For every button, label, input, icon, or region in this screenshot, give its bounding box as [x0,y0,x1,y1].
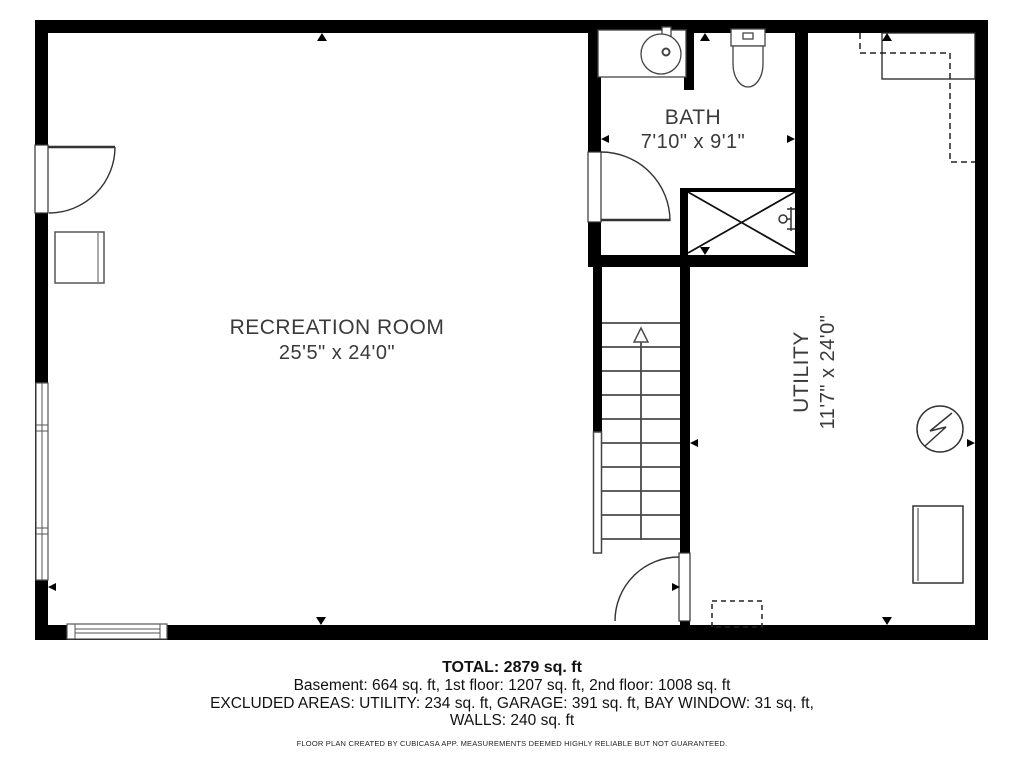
marker-triangle [690,439,698,447]
marker-triangle [700,33,710,41]
marker-triangle [882,617,892,625]
marker-triangle [316,617,326,625]
entry-door [48,147,115,213]
floor-plan-page: RECREATION ROOM 25'5" x 24'0" BATH 7'10"… [0,0,1024,768]
bath-door-opening [588,152,601,222]
recreation-room-dimensions: 25'5" x 24'0" [279,342,395,364]
toilet-icon [731,29,765,87]
sink-vanity-icon [598,27,686,77]
window-left [36,383,48,580]
door-swing-arc [615,557,679,621]
marker-triangle [48,583,56,591]
marker-triangle [317,33,327,41]
marker-triangle [700,247,710,255]
total-area: TOTAL: 2879 sq. ft [0,659,1024,677]
entry-door-opening [35,145,48,213]
marker-triangle [787,135,795,143]
measurement-summary: TOTAL: 2879 sq. ft Basement: 664 sq. ft,… [0,659,1024,748]
excluded-areas-line2: WALLS: 240 sq. ft [0,712,1024,730]
bath-label: BATH [665,106,721,129]
floor-plan-drawing: RECREATION ROOM 25'5" x 24'0" BATH 7'10"… [0,0,1024,660]
appliance-icon [913,506,963,583]
window-bottom [67,624,167,639]
recreation-room-label: RECREATION ROOM [230,316,445,339]
walls [35,20,988,640]
marker-triangle [967,439,975,447]
door-openings [35,145,690,621]
utility-dimensions: 11'7" x 24'0" [817,315,839,430]
shower-valve-icon [779,207,795,231]
stairs-door [615,557,679,621]
door-swing-arc [49,147,115,213]
dashed-fixture-box [712,601,762,627]
bath-dimensions: 7'10" x 9'1" [641,131,746,153]
floor-areas: Basement: 664 sq. ft, 1st floor: 1207 sq… [0,677,1024,695]
cabinet-icon [55,232,104,283]
shower-icon [688,192,795,253]
excluded-areas-line1: EXCLUDED AREAS: UTILITY: 234 sq. ft, GAR… [0,695,1024,713]
water-heater-icon [917,406,963,452]
soffit-box [882,33,975,79]
door-swing-arc [601,152,670,221]
disclaimer-text: FLOOR PLAN CREATED BY CUBICASA APP. MEAS… [0,739,1024,748]
stairs-door-opening [679,553,690,621]
utility-label: UTILITY [790,331,813,413]
stairs-railing [594,432,602,553]
bath-door [601,152,670,221]
staircase-up-icon [602,323,680,540]
marker-triangle [601,135,609,143]
